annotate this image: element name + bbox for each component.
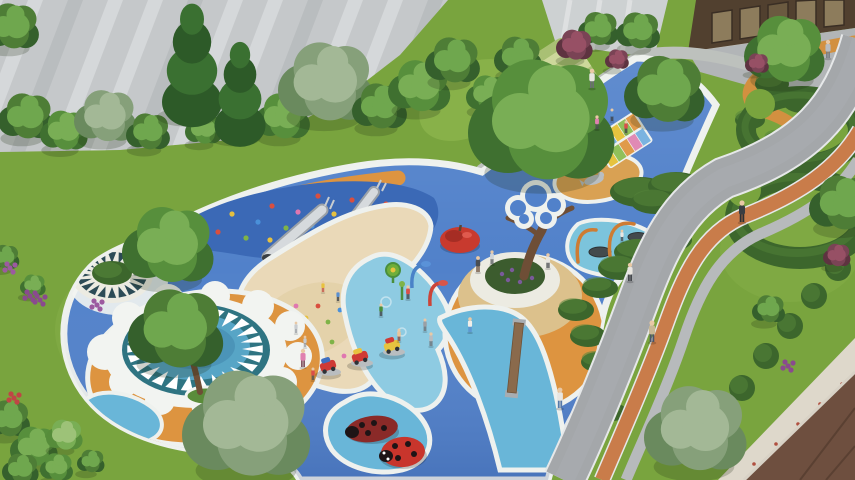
climbing-hold [331, 211, 336, 216]
aerial-render-image [0, 0, 855, 480]
climbing-hold [349, 197, 354, 202]
paver-dot [752, 462, 756, 466]
bench-planter [485, 258, 545, 294]
climbing-hold [229, 211, 234, 216]
climbing-hold [295, 209, 300, 214]
climbing-hold [243, 235, 248, 240]
hedgerow-shrub [753, 343, 779, 369]
paver-dot [774, 442, 778, 446]
sand-toy [330, 340, 335, 345]
climbing-hold [267, 237, 272, 242]
climbing-hold [255, 219, 260, 224]
playground-aerial-render [0, 0, 855, 480]
hedgerow-shrub [801, 283, 827, 309]
sand-toy [342, 354, 347, 359]
sand-toy [294, 304, 299, 309]
climbing-hold [215, 229, 220, 234]
climbing-hold [315, 193, 320, 198]
climbing-hold [283, 225, 288, 230]
sand-toy [316, 304, 321, 309]
sand-toy [326, 320, 331, 325]
climbing-hold [269, 203, 274, 208]
